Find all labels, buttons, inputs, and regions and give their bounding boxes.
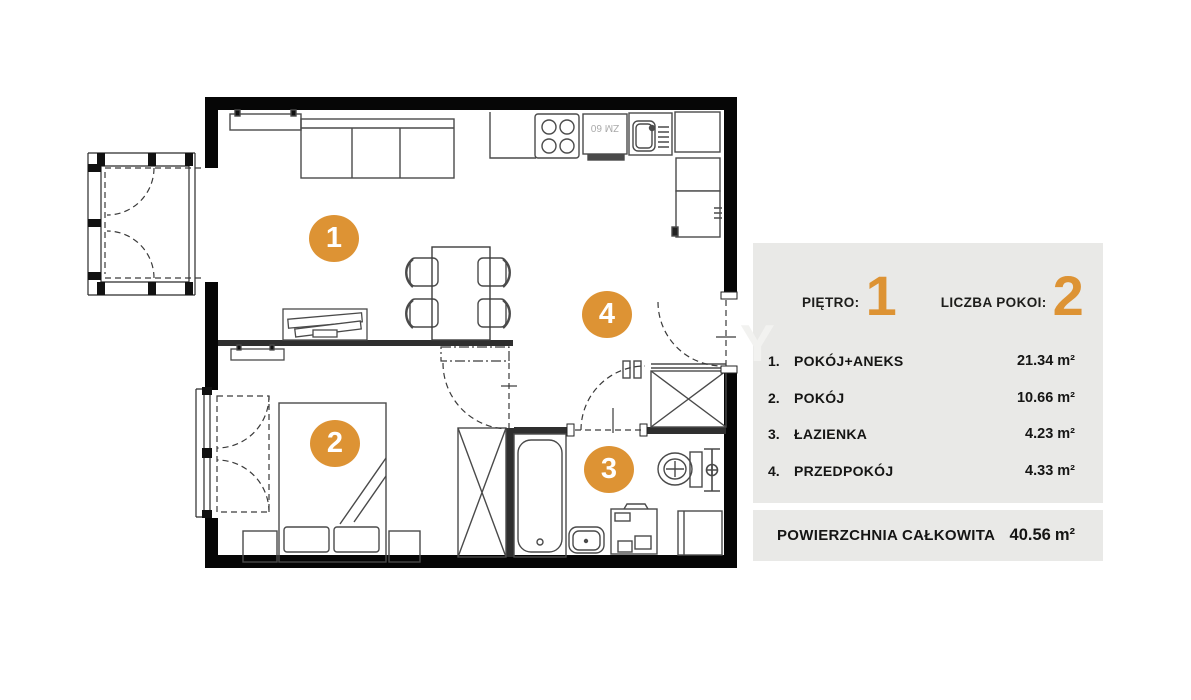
room-marker-2: 2	[310, 420, 360, 467]
room-number: 2.	[768, 390, 788, 406]
interior-walls	[218, 340, 726, 557]
room-area: 10.66m²	[1017, 390, 1075, 406]
dishwasher-icon	[583, 114, 627, 154]
total-area-bar: POWIERZCHNIA CAŁKOWITA 40.56m²	[753, 510, 1103, 561]
balcony-door-icon	[105, 168, 203, 278]
legend-room-row: 4. PRZEDPOKÓJ 4.33m²	[753, 453, 1103, 490]
legend-room-row: 1. POKÓJ+ANEKS 21.34m²	[753, 343, 1103, 380]
rooms-count-label: LICZBA POKOI:	[941, 295, 1047, 310]
tv-cabinet-icon	[283, 309, 367, 340]
bedroom-door-icon	[443, 363, 509, 429]
shower-cabinet-icon	[678, 511, 722, 555]
room-number: 4.	[768, 463, 788, 479]
room-number: 1.	[768, 353, 788, 369]
bedroom-window-door-icon	[217, 396, 269, 512]
toilet-icon	[658, 452, 702, 487]
room-area: 4.23m²	[1025, 426, 1075, 442]
radiator-icon	[704, 449, 720, 491]
room-marker-1: 1	[309, 215, 359, 262]
room-marker-3: 3	[584, 446, 634, 493]
floor-label: PIĘTRO:	[802, 295, 860, 310]
legend-room-row: 2. POKÓJ 10.66m²	[753, 380, 1103, 417]
rooms-count-value: 2	[1053, 273, 1084, 319]
wall-shelf-icon	[231, 345, 284, 360]
sliding-door-icon	[441, 347, 509, 361]
fridge-icon	[676, 191, 720, 237]
washbasin-icon	[569, 527, 604, 553]
total-area-value: 40.56m²	[1010, 526, 1075, 545]
dining-table-icon	[406, 247, 510, 340]
rooms-count-group: LICZBA POKOI: 2	[941, 273, 1084, 319]
balcony-posts	[88, 153, 193, 295]
room-name: POKÓJ+ANEKS	[794, 353, 1017, 369]
sofa-icon	[230, 110, 454, 178]
legend-room-list: 1. POKÓJ+ANEKS 21.34m² 2. POKÓJ 10.66m² …	[753, 343, 1103, 489]
room-name: ŁAZIENKA	[794, 426, 1025, 442]
entrance-door-icon	[658, 300, 726, 366]
floor-value: 1	[866, 273, 897, 319]
floorplan-page: ZM 60	[0, 0, 1191, 700]
hall-wardrobe-icon	[623, 361, 726, 427]
room-name: POKÓJ	[794, 390, 1017, 406]
balcony	[88, 153, 195, 295]
legend-header: PIĘTRO: 1 LICZBA POKOI: 2	[802, 257, 1103, 319]
room-area: 4.33m²	[1025, 463, 1075, 479]
total-area-label: POWIERZCHNIA CAŁKOWITA	[777, 527, 995, 544]
legend-room-row: 3. ŁAZIENKA 4.23m²	[753, 416, 1103, 453]
legend-panel: PIĘTRO: 1 LICZBA POKOI: 2 1. POKÓJ+ANEKS…	[753, 243, 1103, 503]
room-name: PRZEDPOKÓJ	[794, 463, 1025, 479]
washing-machine-icon	[611, 504, 657, 554]
room-marker-4: 4	[582, 291, 632, 338]
appliance-label: ZM 60	[590, 122, 619, 133]
floor-group: PIĘTRO: 1	[802, 273, 897, 319]
room-number: 3.	[768, 426, 788, 442]
bathtub-icon	[514, 434, 566, 557]
wardrobe-icon	[458, 428, 506, 557]
room-area: 21.34m²	[1017, 353, 1075, 369]
